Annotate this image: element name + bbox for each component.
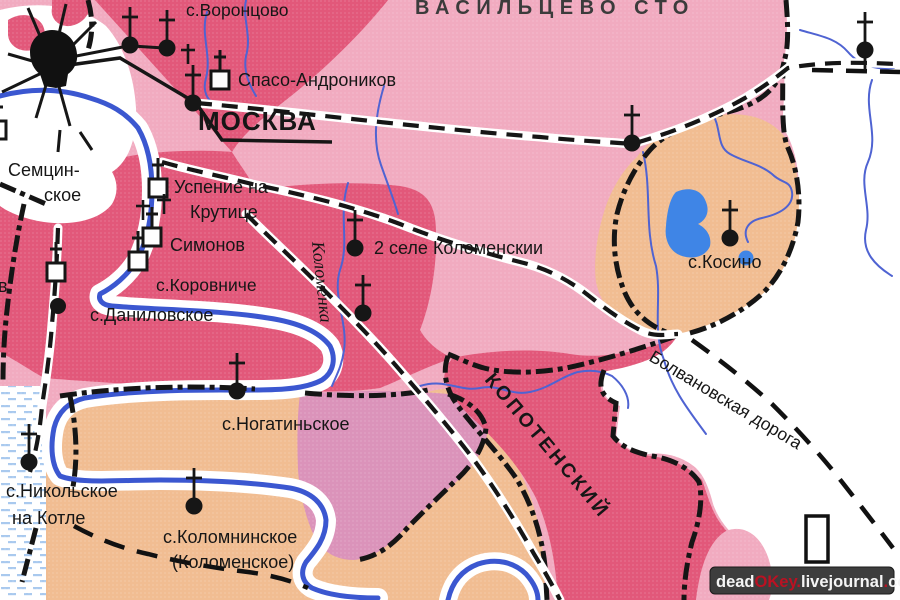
label-kolomninskoe-2: (Коломенское) bbox=[172, 552, 294, 572]
historic-moscow-map: ВАСИЛЬЦЕВО СТО с.Воронцово Спасо-Андрони… bbox=[0, 0, 900, 600]
label-moskva: МОСКВА bbox=[198, 106, 317, 136]
label-nikolskoe-1: с.Никольское bbox=[6, 481, 118, 501]
label-korovniche: с.Коровниче bbox=[156, 275, 257, 295]
label-vorontsovo: с.Воронцово bbox=[186, 0, 289, 20]
map-canvas: ВАСИЛЬЦЕВО СТО с.Воронцово Спасо-Андрони… bbox=[0, 0, 900, 600]
label-spaso-andronikov: Спасо-Андроников bbox=[238, 70, 396, 90]
region-title-label: ВАСИЛЬЦЕВО СТО bbox=[415, 0, 695, 19]
watermark-part-okey: OKey bbox=[755, 573, 799, 591]
watermark-part-dead: dead bbox=[716, 573, 755, 591]
label-danilovskoe: с.Даниловское bbox=[90, 305, 213, 325]
label-edge-letter: в bbox=[0, 276, 8, 296]
watermark-part-livejournal: livejournal bbox=[801, 573, 884, 591]
label-kolomninskoe-1: с.Коломнинское bbox=[163, 527, 297, 547]
watermark: deadOKey.livejournal.com bbox=[710, 567, 900, 594]
watermark-text: deadOKey.livejournal.com bbox=[716, 573, 900, 591]
village-dot-danilovskoe bbox=[50, 298, 66, 314]
label-sele-kolomenskii: 2 селе Коломенскии bbox=[374, 238, 543, 258]
label-uspenie-2: Крутице bbox=[190, 202, 258, 222]
label-semtsinskoe-2: ское bbox=[44, 185, 81, 205]
label-semtsinskoe-1: Семцин- bbox=[8, 160, 80, 180]
road-church-east-link bbox=[812, 70, 900, 72]
label-simonov: Симонов bbox=[170, 235, 245, 255]
label-uspenie-1: Успение на bbox=[174, 177, 269, 197]
label-nogatinskoe: с.Ногатиньское bbox=[222, 414, 350, 434]
watermark-part-com: com bbox=[888, 573, 900, 591]
label-kosino: с.Косино bbox=[688, 252, 762, 272]
map-symbol-rectangle bbox=[806, 516, 828, 562]
label-nikolskoe-2: на Котле bbox=[12, 508, 85, 528]
